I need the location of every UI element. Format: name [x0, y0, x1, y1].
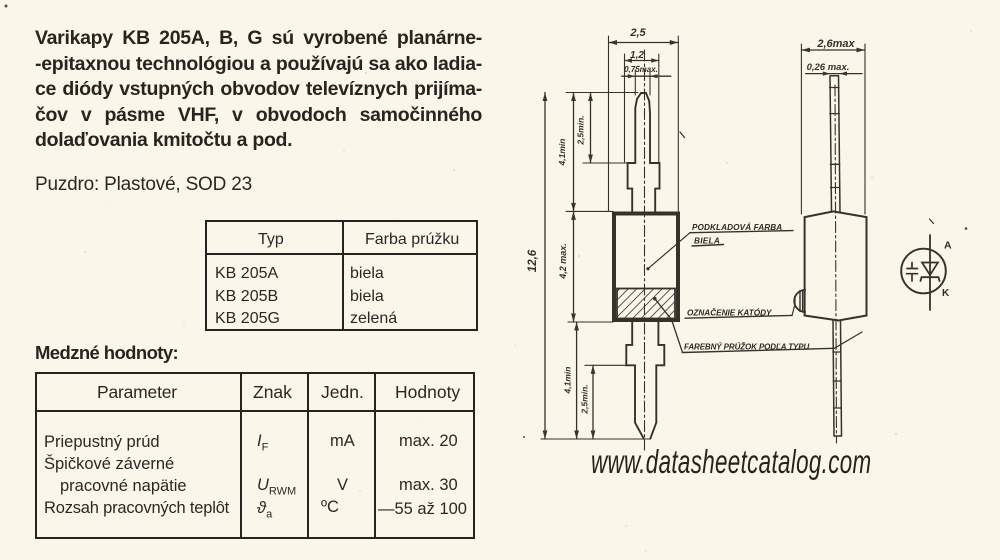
svg-text:2,6max: 2,6max	[816, 38, 855, 50]
svg-text:FAREBNÝ PRÚŽOK PODĽA TYPU: FAREBNÝ PRÚŽOK PODĽA TYPU	[684, 343, 810, 352]
svg-text:12,6: 12,6	[527, 249, 539, 272]
svg-text:1,2: 1,2	[630, 50, 644, 61]
svg-text:2,5: 2,5	[629, 27, 646, 39]
svg-text:0,26 max.: 0,26 max.	[807, 62, 850, 73]
svg-text:K: K	[942, 288, 950, 299]
svg-text:4,1min: 4,1min	[563, 367, 573, 395]
svg-text:0,75max.: 0,75max.	[624, 65, 658, 74]
svg-text:4,2 max.: 4,2 max.	[558, 243, 568, 280]
svg-text:2,5min.: 2,5min.	[580, 384, 590, 414]
svg-text:A: A	[944, 240, 952, 252]
svg-text:4,1min: 4,1min	[557, 139, 567, 167]
svg-text:PODKLADOVÁ FARBA: PODKLADOVÁ FARBA	[692, 222, 782, 232]
svg-text:OZNAČENIE KATÓDY: OZNAČENIE KATÓDY	[687, 307, 773, 318]
svg-text:BIELA: BIELA	[694, 237, 720, 246]
svg-text:2,5min.: 2,5min.	[576, 115, 586, 145]
